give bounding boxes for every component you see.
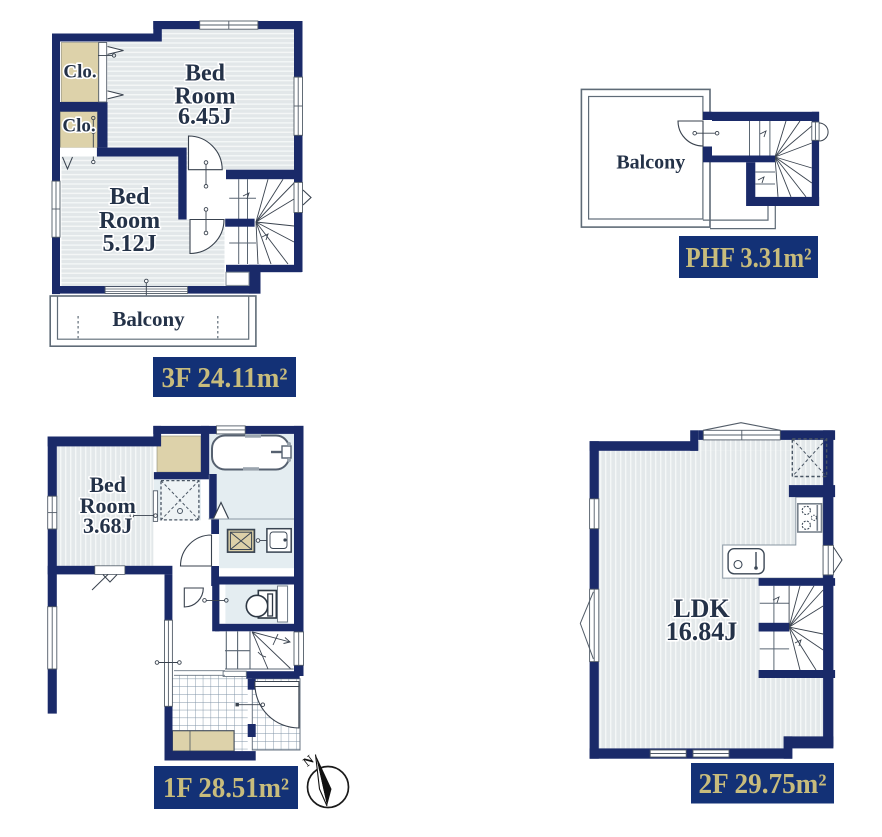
- svg-text:2F 29.75m²: 2F 29.75m²: [699, 769, 827, 800]
- svg-text:3F 24.11m²: 3F 24.11m²: [162, 363, 288, 394]
- svg-text:N: N: [300, 751, 317, 769]
- svg-text:PHF 3.31m²: PHF 3.31m²: [686, 243, 812, 274]
- svg-text:1F 28.51m²: 1F 28.51m²: [163, 773, 289, 804]
- svg-text:16.84J: 16.84J: [666, 617, 738, 646]
- svg-text:6.45J: 6.45J: [178, 104, 232, 130]
- svg-text:Clo.: Clo.: [63, 62, 96, 83]
- svg-text:Balcony: Balcony: [112, 307, 185, 331]
- svg-text:Clo.: Clo.: [62, 116, 95, 137]
- svg-text:3.68J: 3.68J: [83, 513, 133, 538]
- svg-text:Bed: Bed: [109, 184, 150, 210]
- svg-text:Balcony: Balcony: [616, 152, 685, 174]
- svg-text:5.12J: 5.12J: [103, 231, 157, 257]
